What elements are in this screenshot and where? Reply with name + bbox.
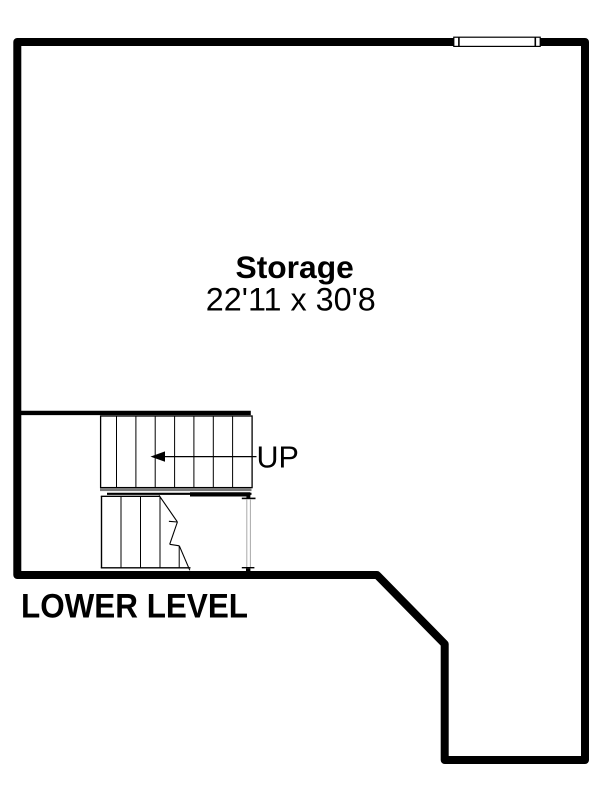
svg-text:UP: UP xyxy=(257,441,299,475)
svg-text:22'11 x 30'8: 22'11 x 30'8 xyxy=(206,282,376,318)
svg-text:LOWER LEVEL: LOWER LEVEL xyxy=(21,587,248,625)
svg-text:Storage: Storage xyxy=(236,249,354,285)
